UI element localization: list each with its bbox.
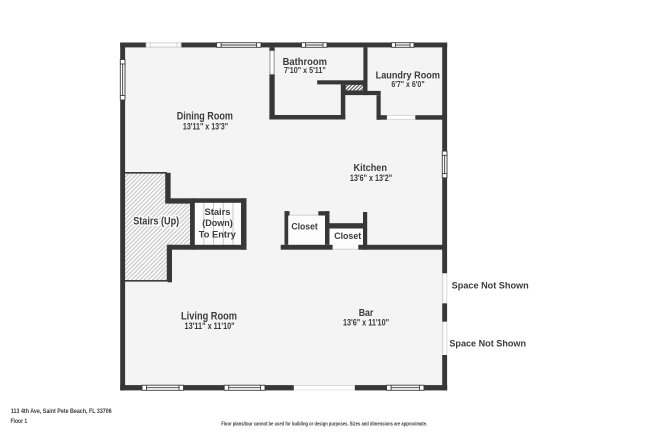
svg-text:Floor plans/tour cannot be use: Floor plans/tour cannot be used for buil… bbox=[221, 421, 427, 427]
svg-text:Closet: Closet bbox=[334, 231, 361, 241]
svg-text:Floor 1: Floor 1 bbox=[11, 418, 28, 425]
svg-text:(Down): (Down) bbox=[202, 218, 233, 228]
svg-text:Space Not Shown: Space Not Shown bbox=[449, 338, 526, 348]
svg-text:Space Not Shown: Space Not Shown bbox=[452, 281, 529, 291]
svg-text:7'10" x 5'11": 7'10" x 5'11" bbox=[284, 65, 326, 75]
svg-text:To Entry: To Entry bbox=[199, 229, 237, 239]
svg-text:Kitchen: Kitchen bbox=[354, 162, 387, 174]
svg-text:13'11" x 13'3": 13'11" x 13'3" bbox=[183, 122, 228, 132]
svg-text:13'11" x 11'10": 13'11" x 11'10" bbox=[185, 321, 235, 331]
svg-text:13'6" x 13'2": 13'6" x 13'2" bbox=[350, 173, 392, 183]
svg-text:13'6" x 11'10": 13'6" x 11'10" bbox=[343, 318, 389, 328]
svg-text:113 4th Ave, Saint Pete Beach,: 113 4th Ave, Saint Pete Beach, FL 33706 bbox=[11, 408, 112, 415]
svg-text:6'7" x 6'0": 6'7" x 6'0" bbox=[391, 79, 424, 89]
svg-text:Closet: Closet bbox=[291, 222, 317, 232]
svg-text:Stairs: Stairs bbox=[205, 207, 231, 217]
svg-text:Stairs (Up): Stairs (Up) bbox=[133, 215, 179, 227]
